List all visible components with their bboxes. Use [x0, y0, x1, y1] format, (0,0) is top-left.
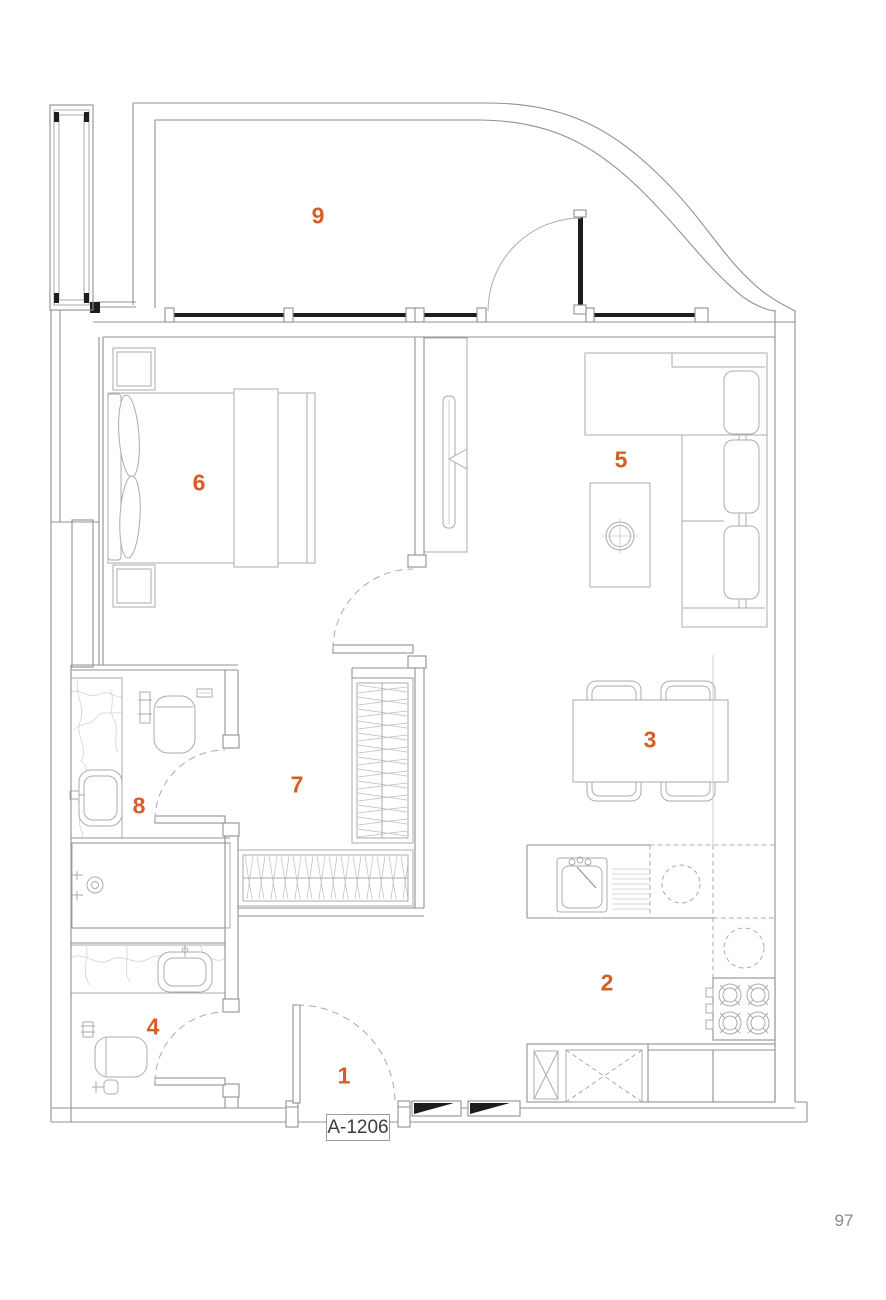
bed — [108, 389, 315, 567]
kitchen-lower-cabinets — [527, 1044, 775, 1102]
floor-plan-drawing — [0, 0, 886, 1300]
balcony-door — [488, 210, 586, 314]
tall-window — [50, 105, 93, 310]
room-label-entry-hall: 1 — [338, 1065, 351, 1088]
wardrobe-horizontal — [238, 850, 413, 906]
room-label-bedroom: 6 — [193, 472, 206, 495]
wardrobe-vertical — [352, 678, 413, 843]
unit-number-tag: A-1206 — [326, 1114, 390, 1141]
room-label-dining: 3 — [644, 729, 657, 752]
sofa — [585, 353, 767, 627]
room-label-bathroom-2: 4 — [147, 1016, 160, 1039]
kitchen-sink — [557, 857, 650, 912]
floor-plan-page: 1 2 3 4 5 6 7 8 9 A-1206 97 — [0, 0, 886, 1300]
room-label-kitchen: 2 — [601, 972, 614, 995]
tv-unit — [424, 338, 467, 552]
balcony-outline — [90, 103, 795, 313]
room-label-dressing-hall: 7 — [291, 774, 304, 797]
page-number: 97 — [835, 1211, 854, 1231]
window-band — [165, 308, 708, 322]
coffee-table — [590, 483, 650, 587]
room-label-bathroom-1: 8 — [133, 795, 146, 818]
room-label-balcony: 9 — [312, 205, 325, 228]
bathtub — [72, 843, 230, 928]
room-label-living-room: 5 — [615, 449, 628, 472]
cooktop — [706, 978, 775, 1040]
